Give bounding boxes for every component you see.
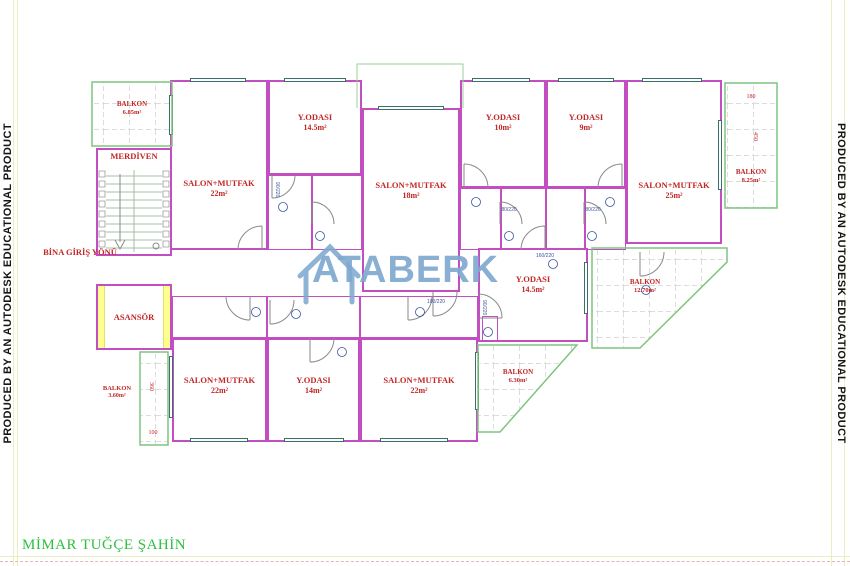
autodesk-banner-left: PRODUCED BY AN AUTODESK EDUCATIONAL PROD… bbox=[0, 0, 16, 566]
room-bath-tm-a bbox=[460, 188, 546, 250]
window-mark bbox=[472, 78, 530, 82]
window-mark bbox=[558, 78, 614, 82]
balcony-top-right bbox=[725, 83, 777, 208]
autodesk-banner-right: PRODUCED BY AN AUTODESK EDUCATIONAL PROD… bbox=[833, 0, 849, 566]
dim-100: 100 bbox=[138, 430, 168, 436]
frame-line-left-inner bbox=[17, 0, 18, 566]
room-label-merdiven: MERDİVEN bbox=[96, 151, 172, 162]
architect-signature: MİMAR TUĞÇE ŞAHİN bbox=[22, 537, 186, 554]
dim-360: 360 bbox=[148, 382, 154, 391]
door-tag: 80/220 bbox=[582, 208, 604, 213]
dim-450: 450 bbox=[752, 132, 758, 141]
room-yodasi-tm2 bbox=[546, 80, 626, 188]
wall-divider bbox=[584, 188, 586, 250]
room-closet bbox=[482, 316, 498, 342]
door-tag: 100/220 bbox=[424, 300, 448, 305]
autodesk-banner-left-text: PRODUCED BY AN AUTODESK EDUCATIONAL PROD… bbox=[2, 123, 14, 444]
overhang-line bbox=[357, 64, 463, 108]
window-mark bbox=[642, 78, 702, 82]
balcony-mid-right bbox=[592, 248, 727, 348]
label-bina-giris-yonu: BİNA GİRİŞ YÖNÜ bbox=[18, 247, 142, 258]
room-hall-bl bbox=[172, 296, 267, 338]
room-label-salon-tm: SALON+MUTFAK18m² bbox=[362, 180, 460, 201]
room-label-balkon-br: BALKON6.30m² bbox=[478, 368, 558, 386]
room-label-yodasi-tm1: Y.ODASI10m² bbox=[460, 112, 546, 133]
room-label-asansor: ASANSÖR bbox=[96, 312, 172, 323]
window-mark bbox=[380, 438, 448, 442]
window-mark bbox=[284, 78, 346, 82]
door-tag: 90/220 bbox=[274, 182, 279, 197]
room-label-balkon-bl: BALKON3.60m² bbox=[94, 385, 140, 401]
room-hall-bm bbox=[267, 296, 360, 338]
room-label-yodasi-tm2: Y.ODASI9m² bbox=[546, 112, 626, 133]
room-salon-tl bbox=[170, 80, 268, 250]
window-mark bbox=[190, 78, 246, 82]
room-hall-br bbox=[360, 296, 478, 338]
room-label-balkon-tl: BALKON6.85m² bbox=[92, 100, 172, 118]
door-tag: 80/220 bbox=[498, 208, 520, 213]
room-salon-tr bbox=[626, 80, 722, 244]
room-label-balkon-mr: BALKON12.70m² bbox=[600, 278, 690, 296]
door-tag: 90/220 bbox=[481, 300, 486, 315]
room-merdiven bbox=[96, 148, 172, 256]
room-label-salon-tr: SALON+MUTFAK25m² bbox=[626, 180, 722, 201]
bottom-dashed-line bbox=[0, 561, 850, 562]
frame-line-right-inner bbox=[831, 0, 832, 566]
balcony-bottom-right bbox=[478, 345, 577, 432]
room-bath-tl-b bbox=[312, 175, 362, 250]
room-label-salon-bl: SALON+MUTFAK22m² bbox=[172, 375, 267, 396]
room-label-salon-br: SALON+MUTFAK22m² bbox=[360, 375, 478, 396]
room-label-salon-tl: SALON+MUTFAK22m² bbox=[170, 178, 268, 199]
room-label-yodasi-b: Y.ODASI14m² bbox=[267, 375, 360, 396]
window-mark bbox=[284, 438, 344, 442]
dim-180: 180 bbox=[732, 94, 770, 100]
floor-plan-canvas: BALKON6.85m² MERDİVEN SALON+MUTFAK22m² Y… bbox=[0, 0, 850, 566]
room-yodasi-tm1 bbox=[460, 80, 546, 188]
autodesk-banner-right-text: PRODUCED BY AN AUTODESK EDUCATIONAL PROD… bbox=[835, 123, 847, 444]
room-bath-tm-b bbox=[546, 188, 626, 250]
frame-line-bottom bbox=[0, 556, 850, 557]
window-mark bbox=[378, 106, 444, 110]
ataberk-watermark: ATABERK bbox=[312, 251, 499, 289]
room-label-yodasi-tl: Y.ODASI14.5m² bbox=[268, 112, 362, 133]
door-tag: 160/220 bbox=[532, 254, 558, 259]
wall-divider bbox=[500, 188, 502, 250]
room-label-balkon-tr: BALKON8.25m² bbox=[725, 168, 777, 186]
window-mark bbox=[190, 438, 248, 442]
